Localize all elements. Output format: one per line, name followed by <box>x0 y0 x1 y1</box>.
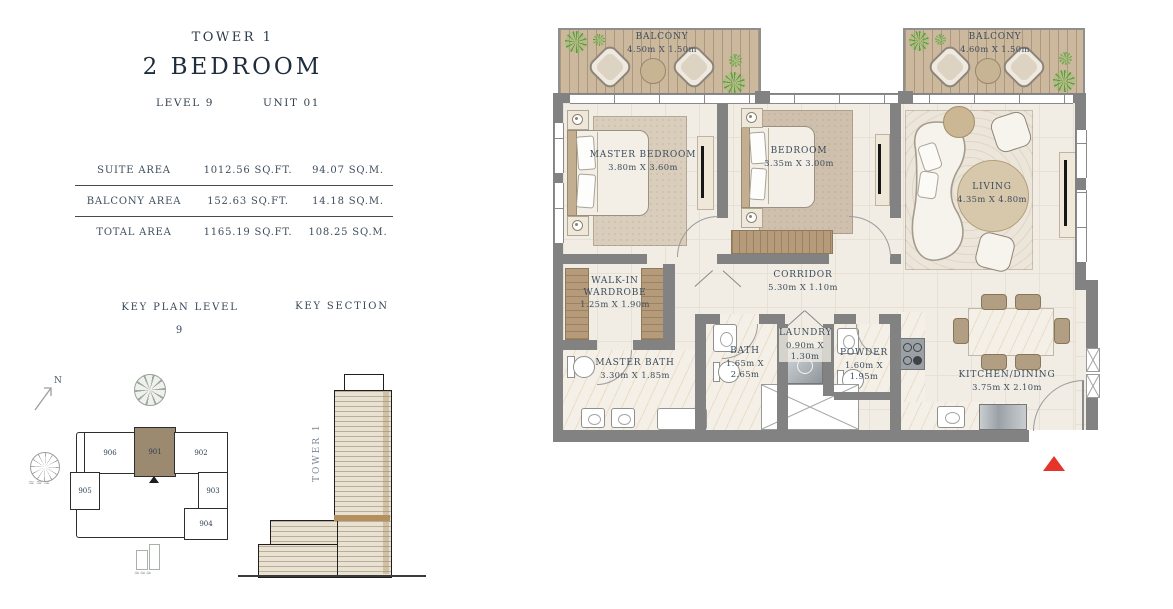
bath-label: BATH 1.65m X 2.65m <box>713 346 777 380</box>
podium-step-lower <box>258 544 338 578</box>
wall-stub <box>890 254 901 264</box>
table-row: SUITE AREA 1012.56 SQ.FT. 94.07 SQ.M. <box>75 155 393 185</box>
room-dims: 0.90m X 1.30m <box>779 340 831 362</box>
balcony-table <box>975 58 1001 84</box>
table-row: TOTAL AREA 1165.19 SQ.FT. 108.25 SQ.M. <box>75 216 393 247</box>
level-label: LEVEL 9 <box>156 97 214 109</box>
closet-hatch <box>761 384 859 430</box>
wall-wardrobe-right <box>663 264 675 344</box>
room-dims: 4.60m X 1.50m <box>960 44 1030 55</box>
highlighted-level-band <box>334 515 390 521</box>
tv-icon <box>701 146 704 198</box>
lamp-icon <box>746 112 757 123</box>
tv-icon <box>1064 160 1067 226</box>
sink-icon <box>581 408 605 428</box>
plant-icon <box>593 34 605 46</box>
plant-icon <box>935 34 946 45</box>
unit-label: UNIT 01 <box>263 97 320 109</box>
balcony-right-label: BALCONY 4.60m X 1.50m <box>960 32 1030 55</box>
key-plan-unit-902: 902 <box>174 432 228 474</box>
lamp-icon <box>572 220 583 231</box>
room-name: BALCONY <box>960 32 1030 44</box>
north-label: N <box>54 376 62 386</box>
room-dims: 3.75m X 2.10m <box>959 382 1056 393</box>
tower-section-label: TOWER 1 <box>312 392 322 482</box>
dining-chair <box>981 354 1007 370</box>
lamp-icon <box>572 114 583 125</box>
plant-icon <box>1053 70 1075 92</box>
wall-bath-left <box>695 314 706 430</box>
wall-stub <box>755 91 770 104</box>
master-bedroom-label: MASTER BEDROOM 3.80m X 3.60m <box>590 150 696 173</box>
plant-icon <box>723 72 745 94</box>
wall-powder-top-a <box>834 314 856 324</box>
wall-mbath-top-b <box>633 340 675 350</box>
nightstand <box>741 108 763 128</box>
plant-icon <box>1059 52 1072 65</box>
stove-icon <box>899 338 925 370</box>
plant-icon <box>729 54 742 67</box>
wall-right-mid <box>1086 280 1098 348</box>
pillow <box>576 173 596 208</box>
area-row-sqm: 94.07 SQ.M. <box>303 165 393 176</box>
key-plan-unit-901-highlighted: 901 <box>134 427 176 477</box>
window-right <box>1076 130 1087 178</box>
wall-bath-top-a <box>695 314 720 324</box>
window-left <box>554 123 564 173</box>
lamp-icon <box>746 212 757 223</box>
room-name: WALK-IN WARDROBE <box>576 276 654 299</box>
nightstand <box>567 110 589 130</box>
page-title: 2 BEDROOM <box>80 54 385 80</box>
key-plan-level: 9 <box>100 325 260 336</box>
laundry-label: LAUNDRY 0.90m X 1.30m <box>779 328 831 362</box>
room-name: BEDROOM <box>764 146 834 158</box>
dining-chair <box>1015 354 1041 370</box>
wall-bed-living <box>890 103 901 218</box>
palm-island-icon <box>134 374 166 406</box>
bedroom-wardrobe <box>731 230 833 254</box>
area-row-label: BALCONY AREA <box>75 196 193 207</box>
area-row-sqft: 1165.19 SQ.FT. <box>193 227 303 238</box>
living-label: LIVING 4.35m X 4.80m <box>957 182 1027 205</box>
plant-icon <box>565 31 587 53</box>
unit-location-marker <box>149 476 159 483</box>
room-name: MASTER BEDROOM <box>590 150 696 162</box>
balcony-table <box>640 58 666 84</box>
area-row-sqft: 1012.56 SQ.FT. <box>193 165 303 176</box>
corridor-label: CORRIDOR 5.30m X 1.10m <box>768 270 838 293</box>
wall-bed-bottom <box>728 254 829 264</box>
kitchen-appliance <box>979 404 1027 430</box>
walk-in-wardrobe-label: WALK-IN WARDROBE 1.25m X 1.90m <box>576 276 654 310</box>
room-dims: 3.35m X 3.00m <box>764 158 834 169</box>
window-band-top <box>570 94 1073 104</box>
wall-mbath-top-a <box>563 340 597 350</box>
wall-stub <box>717 254 728 264</box>
room-name: POWDER <box>833 348 895 360</box>
key-plan-unit-906: 906 <box>84 432 136 474</box>
shaft-hatch <box>1086 374 1100 398</box>
room-dims: 4.35m X 4.80m <box>957 194 1027 205</box>
kitchen-sink-icon <box>937 406 965 428</box>
plant-icon <box>909 31 929 51</box>
room-dims: 1.25m X 1.90m <box>576 299 654 310</box>
room-dims: 4.50m X 1.50m <box>627 44 697 55</box>
master-bedroom-tv-console <box>697 136 714 210</box>
floorplan-brochure-page: { "header": { "tower": "TOWER 1", "title… <box>0 0 1173 609</box>
key-plan-building: 906 901 902 905 903 904 <box>70 420 230 542</box>
dining-chair <box>1015 294 1041 310</box>
room-dims: 1.65m X 2.65m <box>713 358 777 380</box>
wall-bottom <box>553 430 1029 442</box>
side-table <box>943 106 975 138</box>
key-plan-unit-905: 905 <box>70 472 100 510</box>
area-row-sqm: 14.18 SQ.M. <box>303 196 393 207</box>
wall-bath-top-b <box>759 314 785 324</box>
area-row-label: SUITE AREA <box>75 165 193 176</box>
room-dims: 1.60m X 1.95m <box>833 360 895 382</box>
area-table: SUITE AREA 1012.56 SQ.FT. 94.07 SQ.M. BA… <box>75 155 393 247</box>
floor-plan: BALCONY 4.50m X 1.50m BALCONY 4.60m X 1.… <box>545 18 1125 488</box>
room-dims: 5.30m X 1.10m <box>768 282 838 293</box>
wall-mbed-bed <box>717 103 728 218</box>
nightstand <box>567 216 589 236</box>
area-row-label: TOTAL AREA <box>75 227 193 238</box>
tower-balcony-edge <box>383 392 389 574</box>
table-row: BALCONY AREA 152.63 SQ.FT. 14.18 SQ.M. <box>75 185 393 216</box>
tv-icon <box>878 144 881 194</box>
room-name: LAUNDRY <box>779 328 831 340</box>
master-bath-label: MASTER BATH 3.30m X 1.85m <box>589 358 681 381</box>
window-right <box>1076 190 1087 262</box>
key-section-title: KEY SECTION <box>292 301 392 312</box>
area-row-sqft: 152.63 SQ.FT. <box>193 196 303 207</box>
bedroom-label: BEDROOM 3.35m X 3.00m <box>764 146 834 169</box>
area-row-sqm: 108.25 SQ.M. <box>303 227 393 238</box>
key-plan-unit-904: 904 <box>184 508 228 540</box>
key-plan-title: KEY PLAN LEVEL <box>100 302 260 313</box>
room-name: LIVING <box>957 182 1027 194</box>
sink-icon <box>611 408 635 428</box>
window-left <box>554 183 564 243</box>
sofa-pillow <box>917 171 938 199</box>
room-name: KITCHEN/DINING <box>959 370 1056 382</box>
kitchen-dining-label: KITCHEN/DINING 3.75m X 2.10m <box>959 370 1056 393</box>
key-plan-unit-903: 903 <box>198 472 228 510</box>
key-section-diagram: TOWER 1 <box>252 368 412 592</box>
dining-chair <box>953 318 969 344</box>
key-plan-diagram: N ≈≈≈ ≈≈≈ 906 901 902 905 903 904 <box>28 372 233 584</box>
dining-chair <box>981 294 1007 310</box>
ground-line <box>238 575 426 577</box>
nightstand <box>741 208 763 228</box>
pillow <box>749 167 767 200</box>
balcony-left-label: BALCONY 4.50m X 1.50m <box>627 32 697 55</box>
wall-right-lower <box>1086 398 1098 430</box>
dining-chair <box>1054 318 1070 344</box>
shaft-hatch <box>1086 348 1100 372</box>
wall-powder-bottom <box>834 392 890 400</box>
dining-table <box>968 308 1054 356</box>
water-waves-icon: ≈≈≈ <box>28 478 51 487</box>
room-dims: 3.80m X 3.60m <box>590 162 696 173</box>
room-name: BATH <box>713 346 777 358</box>
tower-label: TOWER 1 <box>100 30 365 45</box>
entrance-arrow <box>1043 456 1065 471</box>
room-name: BALCONY <box>627 32 697 44</box>
room-name: MASTER BATH <box>589 358 681 370</box>
room-name: CORRIDOR <box>768 270 838 282</box>
powder-label: POWDER 1.60m X 1.95m <box>833 348 895 382</box>
room-dims: 3.30m X 1.85m <box>589 370 681 381</box>
wall-mbed-bottom <box>563 254 647 264</box>
